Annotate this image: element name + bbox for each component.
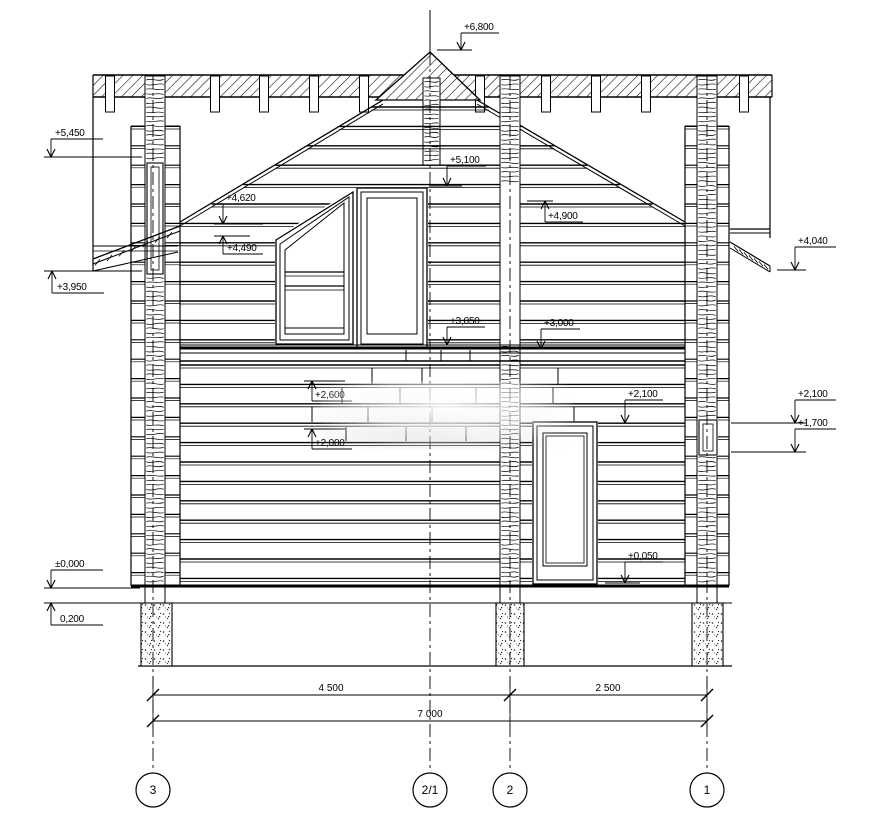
elevation-label-gable-right: +4,900: [548, 211, 578, 222]
axis-label-1: 1: [704, 783, 711, 797]
elevation-label-door-head: +2,100: [628, 389, 658, 400]
axis-label-2: 2: [507, 783, 514, 797]
drawing-canvas: +6,800 +5,450 +3,950 ±0,000 0,200 +5,100…: [0, 0, 871, 830]
section-geometry: [44, 10, 836, 772]
elevation-label-threshold: +0,050: [628, 551, 658, 562]
elevation-label-window-slope: +4,490: [227, 243, 257, 254]
elevation-label-right-eaves: +4,040: [798, 236, 828, 247]
elevation-label-wall-upper: +2,600: [315, 390, 345, 401]
elevation-label-window-head: +4,620: [226, 193, 256, 204]
axis-label-21: 2/1: [422, 783, 439, 797]
axis-label-3: 3: [150, 783, 157, 797]
dimension-total: 7 000: [417, 709, 442, 720]
section-drawing-sheet: +6,800 +5,450 +3,950 ±0,000 0,200 +5,100…: [0, 0, 871, 830]
elevation-label-right-upper: +2,100: [798, 389, 828, 400]
elevation-label-ground-zero: ±0,000: [55, 559, 85, 570]
dimension-right-span: 2 500: [595, 683, 620, 694]
elevation-label-plinth: 0,200: [60, 614, 85, 625]
elevation-label-left-wall-top: +5,450: [55, 128, 85, 139]
elevation-label-ridge: +6,800: [464, 22, 494, 33]
elevation-label-gable-left: +5,100: [450, 155, 480, 166]
elevation-label-floor2-left: +3,050: [450, 316, 480, 327]
elevation-label-floor2-right: +3,000: [544, 318, 574, 329]
elevation-label-left-eaves: +3,950: [57, 282, 87, 293]
elevation-label-right-lower: +1,700: [798, 418, 828, 429]
elevation-label-wall-lower: +2,000: [315, 438, 345, 449]
dimension-left-span: 4 500: [318, 683, 343, 694]
